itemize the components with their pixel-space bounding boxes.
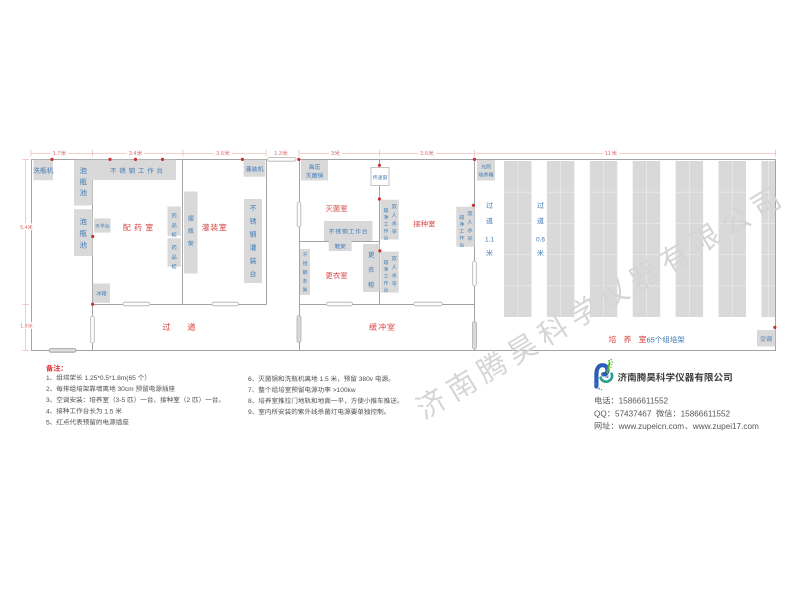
svg-text:0.6: 0.6: [536, 237, 545, 244]
svg-text:1.5: 1.5: [102, 408, 115, 415]
svg-text:15866611552: 15866611552: [619, 397, 669, 406]
svg-text:7: 7: [248, 387, 252, 394]
svg-text:1.1: 1.1: [485, 237, 494, 244]
svg-text:5: 5: [46, 419, 50, 426]
svg-text:3-5: 3-5: [116, 397, 127, 404]
svg-text:9: 9: [248, 409, 252, 416]
svg-text:65: 65: [647, 335, 655, 344]
svg-text:3: 3: [331, 151, 334, 157]
svg-text:8: 8: [248, 398, 252, 405]
svg-text:1.25*0.5*1.8m(65: 1.25*0.5*1.8m(65: [83, 375, 138, 382]
svg-text:>100kw: >100kw: [331, 387, 356, 394]
svg-text:15866611552: 15866611552: [681, 409, 731, 418]
svg-text:2: 2: [186, 397, 192, 404]
svg-text:57437467: 57437467: [615, 409, 656, 418]
svg-text:www.zupei17.com: www.zupei17.com: [692, 422, 759, 431]
svg-text:1.3: 1.3: [274, 151, 282, 157]
svg-text:QQ: QQ: [594, 409, 607, 418]
svg-text:www.zupeicn.com: www.zupeicn.com: [618, 422, 685, 431]
svg-text:30cm: 30cm: [116, 386, 136, 393]
svg-text:1.7: 1.7: [53, 151, 61, 157]
svg-text:1.8: 1.8: [20, 324, 27, 330]
svg-text:1.5: 1.5: [318, 376, 331, 383]
svg-text:3: 3: [46, 397, 50, 404]
svg-text:3.4: 3.4: [129, 151, 138, 157]
svg-text:6: 6: [248, 376, 252, 383]
svg-text:1: 1: [46, 375, 50, 382]
svg-text:380v: 380v: [357, 376, 375, 383]
svg-text:2: 2: [46, 386, 50, 393]
svg-text:11: 11: [605, 151, 611, 157]
svg-text:3.6: 3.6: [216, 151, 224, 157]
svg-text:5.4: 5.4: [20, 225, 27, 231]
svg-text:3.6: 3.6: [420, 151, 428, 157]
svg-text:4: 4: [46, 408, 50, 415]
svg-text:T: T: [600, 374, 603, 379]
